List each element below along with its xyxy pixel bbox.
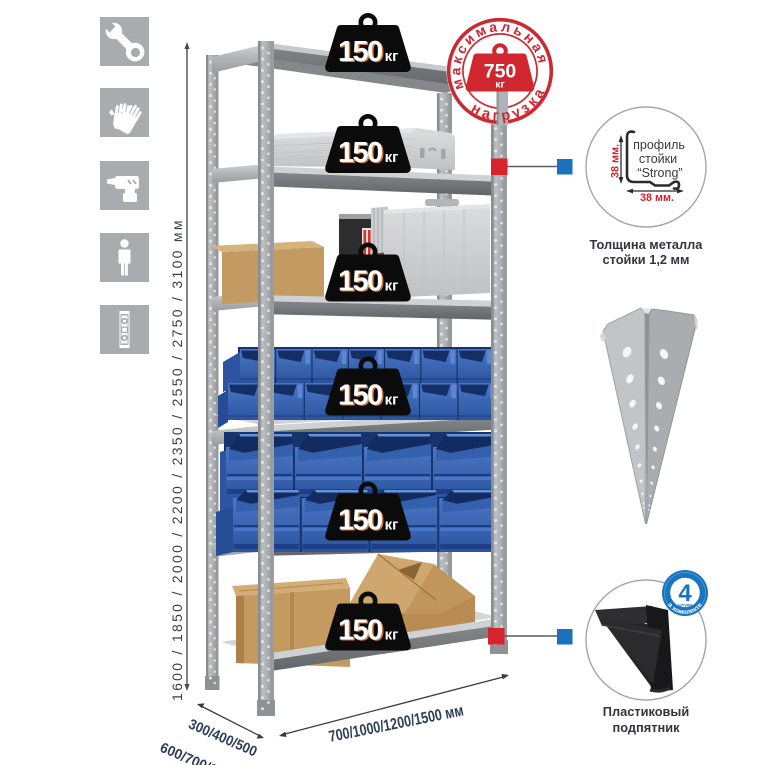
svg-text:38 мм.: 38 мм. (640, 192, 674, 204)
svg-text:Толщина металла: Толщина металла (590, 237, 704, 252)
svg-text:штуки: штуки (678, 603, 692, 608)
svg-text:стойки 1,2 мм: стойки 1,2 мм (602, 252, 689, 267)
svg-text:“Strong”: “Strong” (637, 166, 682, 180)
svg-text:38 мм.: 38 мм. (610, 144, 622, 178)
svg-text:профиль: профиль (633, 138, 685, 152)
svg-text:подпятник: подпятник (613, 720, 681, 735)
svg-text:стойки: стойки (639, 152, 677, 166)
svg-text:Пластиковый: Пластиковый (603, 704, 689, 719)
svg-text:1600 / 1850 / 2000 / 2200 / 23: 1600 / 1850 / 2000 / 2200 / 2350 / 2550 … (169, 218, 185, 701)
svg-text:кг: кг (495, 79, 505, 91)
